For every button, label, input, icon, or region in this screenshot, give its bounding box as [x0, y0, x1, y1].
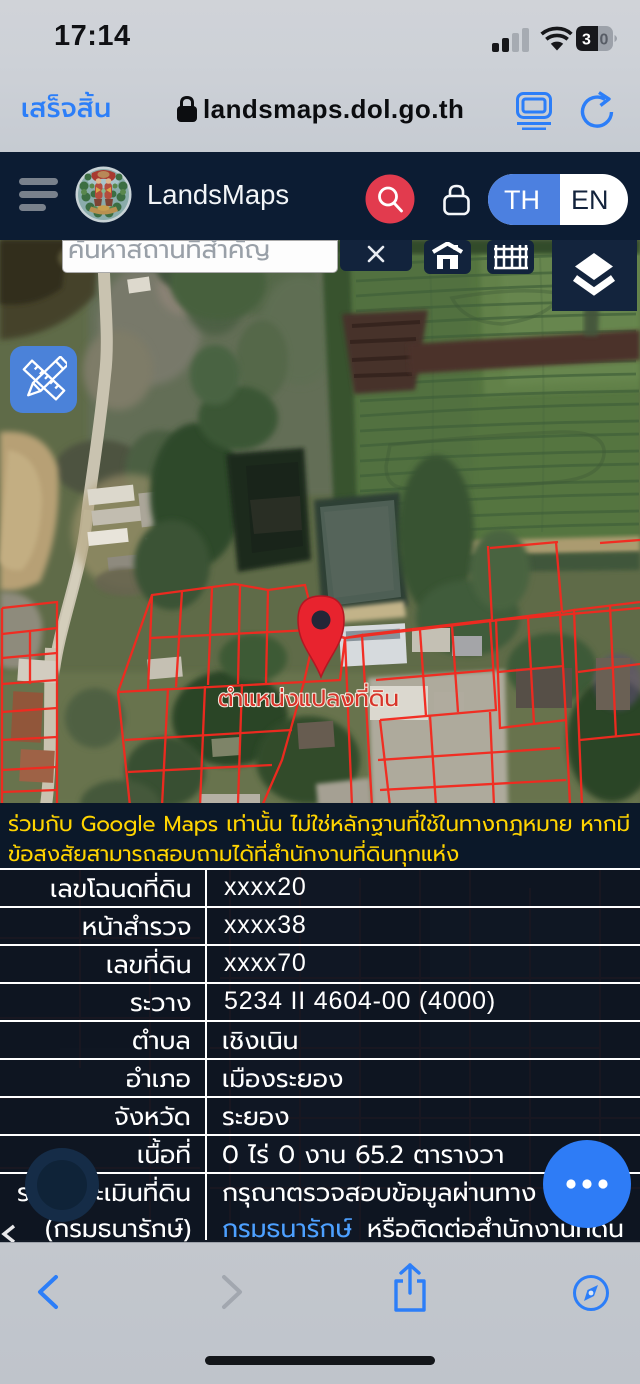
svg-text:0: 0 [600, 32, 609, 49]
svg-text:3: 3 [582, 32, 591, 49]
